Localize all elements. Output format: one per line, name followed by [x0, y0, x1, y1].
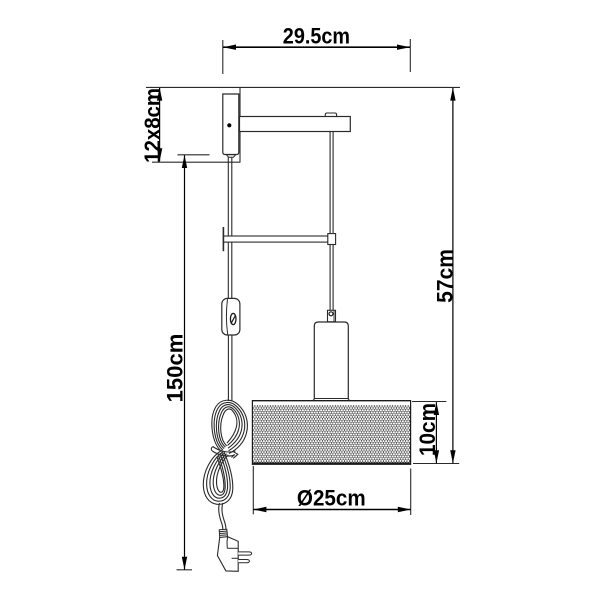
svg-text:10cm: 10cm: [414, 403, 440, 456]
svg-text:Ø25cm: Ø25cm: [297, 485, 366, 511]
svg-text:150cm: 150cm: [162, 334, 187, 403]
svg-text:57cm: 57cm: [432, 249, 458, 303]
svg-text:12x8cm: 12x8cm: [140, 88, 165, 163]
svg-text:29.5cm: 29.5cm: [283, 24, 350, 48]
